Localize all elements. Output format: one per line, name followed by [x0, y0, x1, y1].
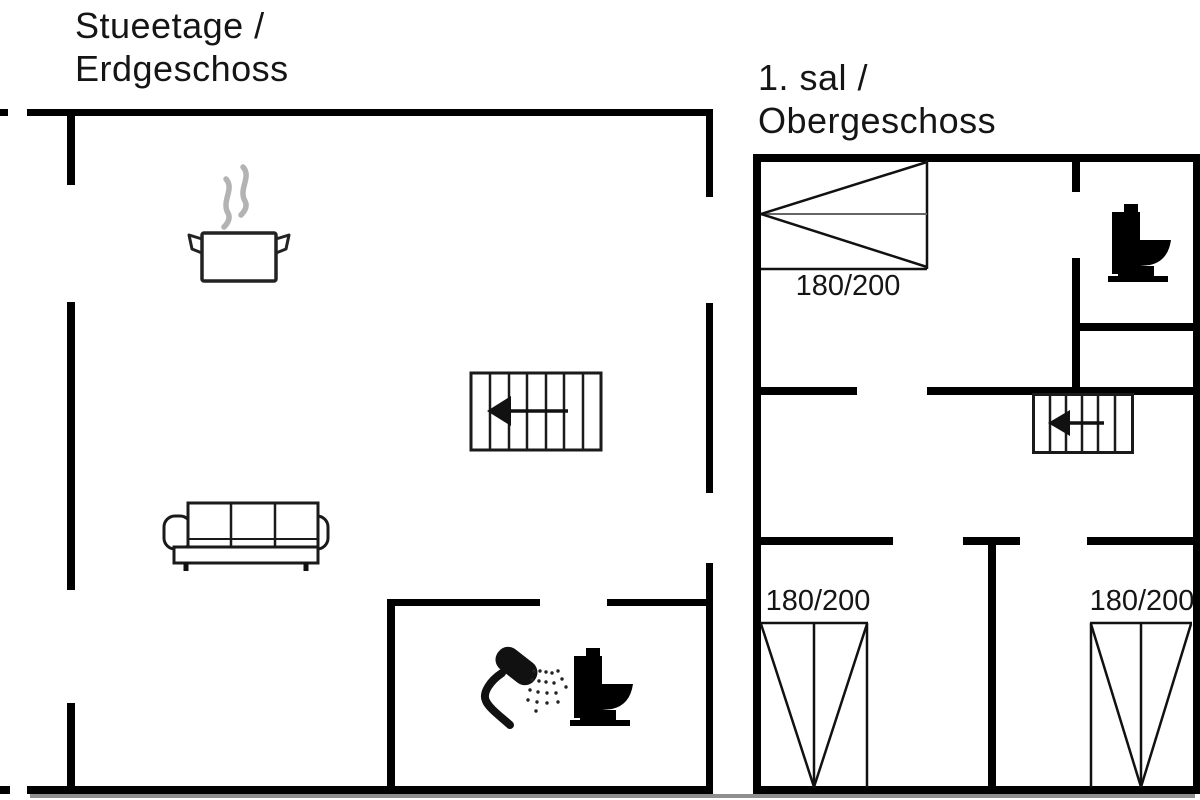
- gf-right-wall-lower: [706, 563, 713, 794]
- toilet-icon: [567, 648, 633, 726]
- uf-bathroom-wall-upper: [1072, 154, 1080, 192]
- uf-bathroom-bottom-wall: [1072, 323, 1200, 331]
- uf-bedroom-wall-left: [757, 537, 893, 545]
- gf-bathroom-left-wall: [387, 599, 395, 794]
- uf-right-wall: [1193, 154, 1200, 794]
- gf-bathroom-top-wall-right: [607, 599, 713, 606]
- bed-icon: [1089, 621, 1193, 788]
- gf-right-wall-upper: [706, 109, 713, 197]
- gf-bottom-wall: [27, 786, 713, 794]
- cooking-pot-icon: [186, 163, 290, 285]
- shower-icon: [478, 645, 570, 733]
- right-plan-title: 1. sal / Obergeschoss: [758, 56, 996, 142]
- double-bed-size-label: 180/200: [788, 270, 908, 303]
- uf-bedroom-wall-right: [1087, 537, 1200, 545]
- sofa-icon: [161, 501, 331, 573]
- toilet-icon: [1104, 204, 1172, 282]
- double-bed-icon: [761, 158, 929, 271]
- gf-bottom-wall-stub: [0, 786, 10, 794]
- gf-top-wall: [27, 109, 713, 116]
- bottom-wall-shadow: [30, 794, 1195, 798]
- floorplan-canvas: Stueetage / Erdgeschoss 1. sal / Oberges…: [0, 0, 1200, 800]
- uf-hall-wall-left: [757, 387, 857, 395]
- gf-left-wall-upper: [67, 109, 75, 185]
- gf-left-wall-lower: [67, 703, 75, 794]
- stairs-up-icon: [1032, 393, 1134, 454]
- left-plan-title: Stueetage / Erdgeschoss: [75, 4, 289, 90]
- gf-right-wall-middle: [706, 303, 713, 493]
- bed-icon: [759, 621, 869, 788]
- gf-top-wall-stub: [0, 109, 8, 116]
- bed-size-label: 180/200: [1082, 585, 1200, 618]
- right-plan-title-line2: Obergeschoss: [758, 99, 996, 142]
- stairs-down-icon: [469, 371, 603, 452]
- right-plan-title-line1: 1. sal /: [758, 56, 996, 99]
- uf-bedroom-divider-wall: [988, 537, 996, 794]
- left-plan-title-line1: Stueetage /: [75, 4, 289, 47]
- left-plan-title-line2: Erdgeschoss: [75, 47, 289, 90]
- gf-left-wall-middle: [67, 302, 75, 590]
- bed-size-label: 180/200: [758, 585, 878, 618]
- gf-bathroom-top-wall-left: [387, 599, 540, 606]
